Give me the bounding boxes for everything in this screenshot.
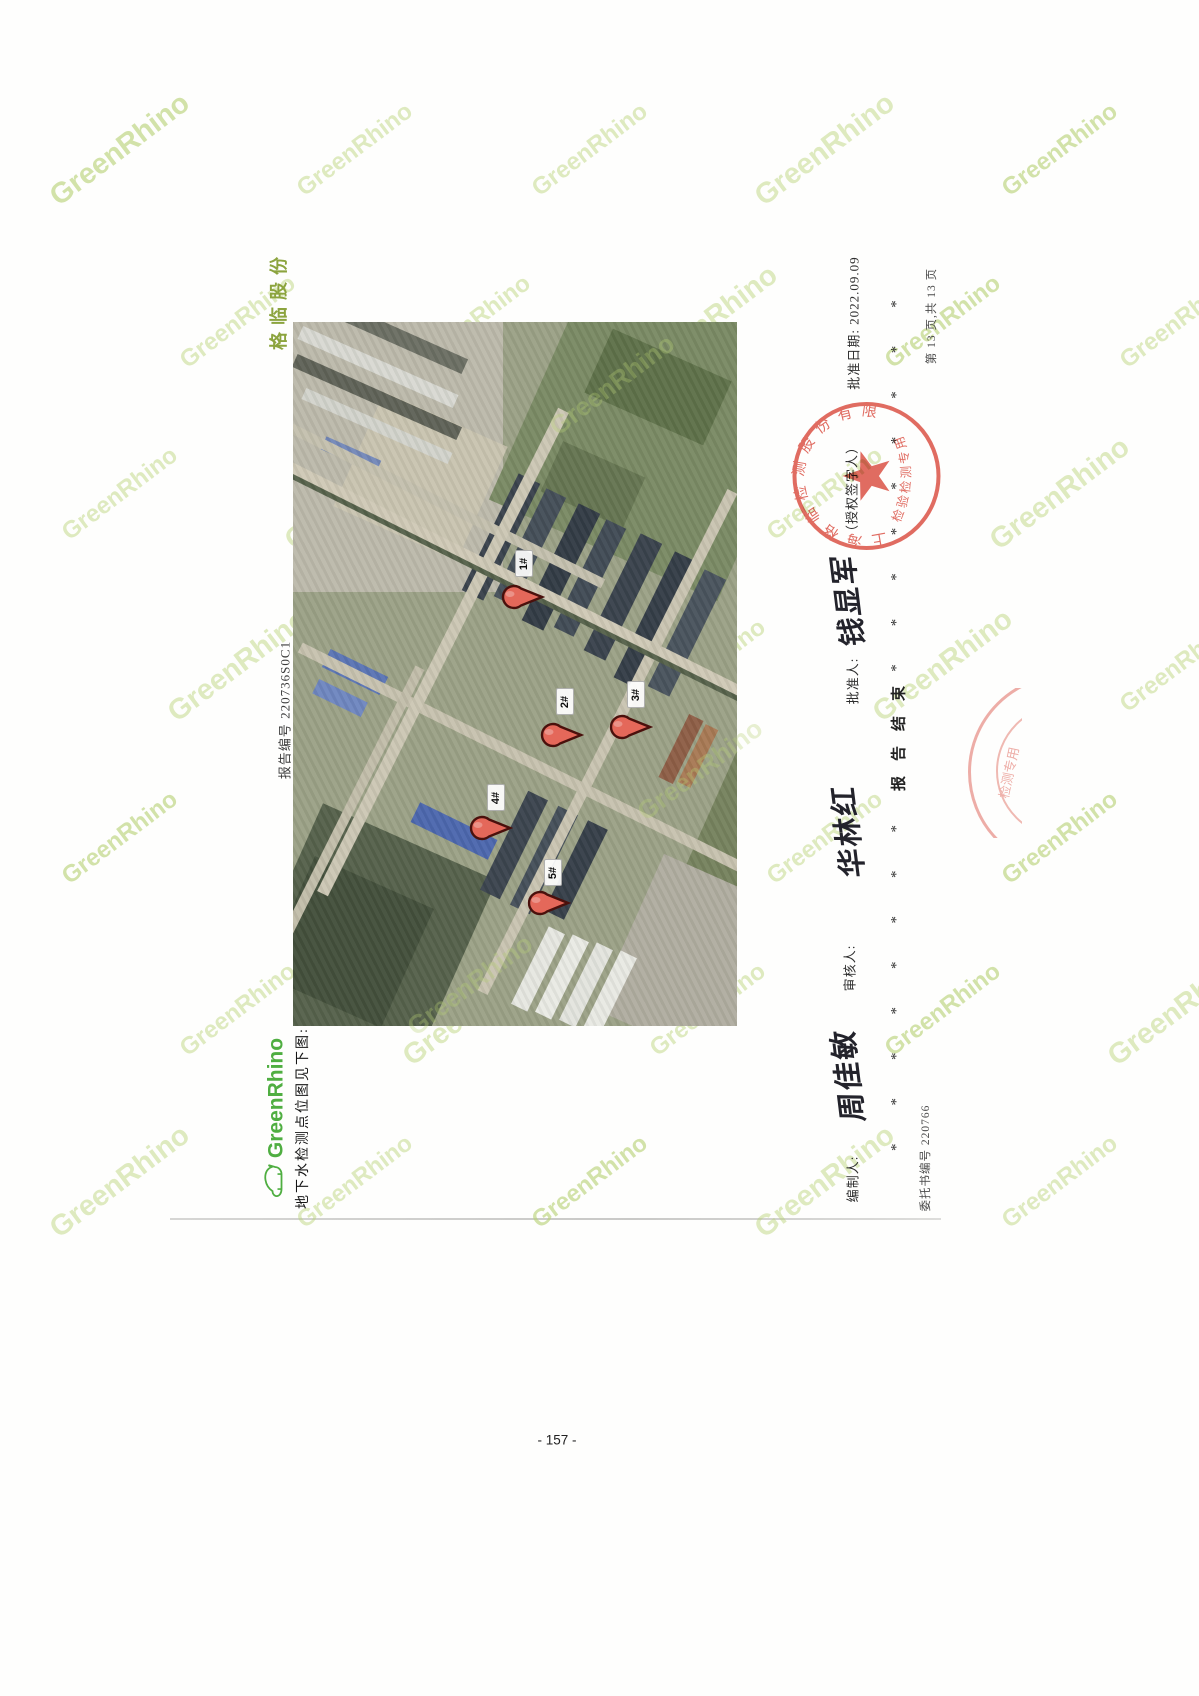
map-pin-1[interactable]	[499, 584, 545, 610]
edge-stamp-fragment: 检测专用	[952, 688, 1022, 838]
watermark: GreenRhino	[1115, 613, 1199, 718]
approval-date: 批准日期: 2022.09.09	[844, 256, 863, 389]
map-pin-label-2: 2#	[556, 688, 574, 715]
watermark: GreenRhino	[44, 87, 196, 213]
watermark: GreenRhino	[749, 87, 901, 213]
watermark: GreenRhino	[1102, 947, 1199, 1073]
report-end-text: 报告结束	[888, 671, 909, 791]
map-grain-overlay	[293, 322, 737, 1026]
page-number: - 157 -	[537, 1433, 576, 1448]
report-number: 报告编号 220736S0C1	[275, 641, 294, 779]
reviewed-label: 审核人:	[840, 945, 859, 992]
satellite-map: 1# 2# 3# 4#	[293, 322, 737, 1026]
map-pin-label-4: 4#	[487, 784, 505, 811]
watermark: GreenRhino	[292, 97, 419, 202]
map-pin-label-5: 5#	[544, 859, 562, 886]
watermark: GreenRhino	[44, 1119, 196, 1245]
map-pin-label-1: 1#	[515, 550, 533, 577]
stamp-star-icon	[843, 451, 890, 500]
map-pin-3[interactable]	[607, 714, 653, 740]
watermark: GreenRhino	[984, 431, 1136, 557]
watermark: GreenRhino	[997, 97, 1124, 202]
map-pin-4[interactable]	[467, 815, 513, 841]
prepared-label: 编制人:	[843, 1156, 862, 1203]
reviewed-signature: 华林红	[825, 784, 867, 877]
approved-signature: 钱显军	[825, 553, 867, 646]
approved-label: 批准人:	[843, 658, 862, 705]
logo-wordmark: GreenRhino	[264, 1038, 288, 1158]
map-pin-2[interactable]	[538, 722, 584, 748]
commission-number: 委托书编号 220766	[917, 1105, 933, 1212]
map-caption: 地下水检测点位图见下图:	[292, 1027, 312, 1209]
watermark: GreenRhino	[997, 1129, 1124, 1234]
greenrhino-logo: GreenRhino	[263, 1038, 290, 1198]
page-edge-shadow	[170, 1218, 941, 1220]
watermark: GreenRhino	[57, 441, 184, 546]
map-pin-label-3: 3#	[627, 681, 645, 708]
greenrhino-rhino-icon	[263, 1164, 290, 1198]
map-pin-5[interactable]	[525, 890, 571, 916]
scanned-report-page: 格临股份 报告编号 220736S0C1 GreenRhino 地下水检测点位图…	[0, 0, 1199, 1696]
company-stamp: 上海格临检测股份有限公司 检验检测专用章	[790, 399, 949, 553]
prepared-signature: 周佳敏	[825, 1028, 867, 1121]
watermark: GreenRhino	[749, 1119, 901, 1245]
watermark: GreenRhino	[1115, 269, 1199, 374]
watermark: GreenRhino	[57, 785, 184, 890]
page-info: 第 13 页,共 13 页	[923, 268, 939, 364]
brand-vertical-text: 格临股份	[265, 250, 291, 350]
asterisks-bottom: ********	[889, 787, 906, 1151]
watermark: GreenRhino	[527, 97, 654, 202]
